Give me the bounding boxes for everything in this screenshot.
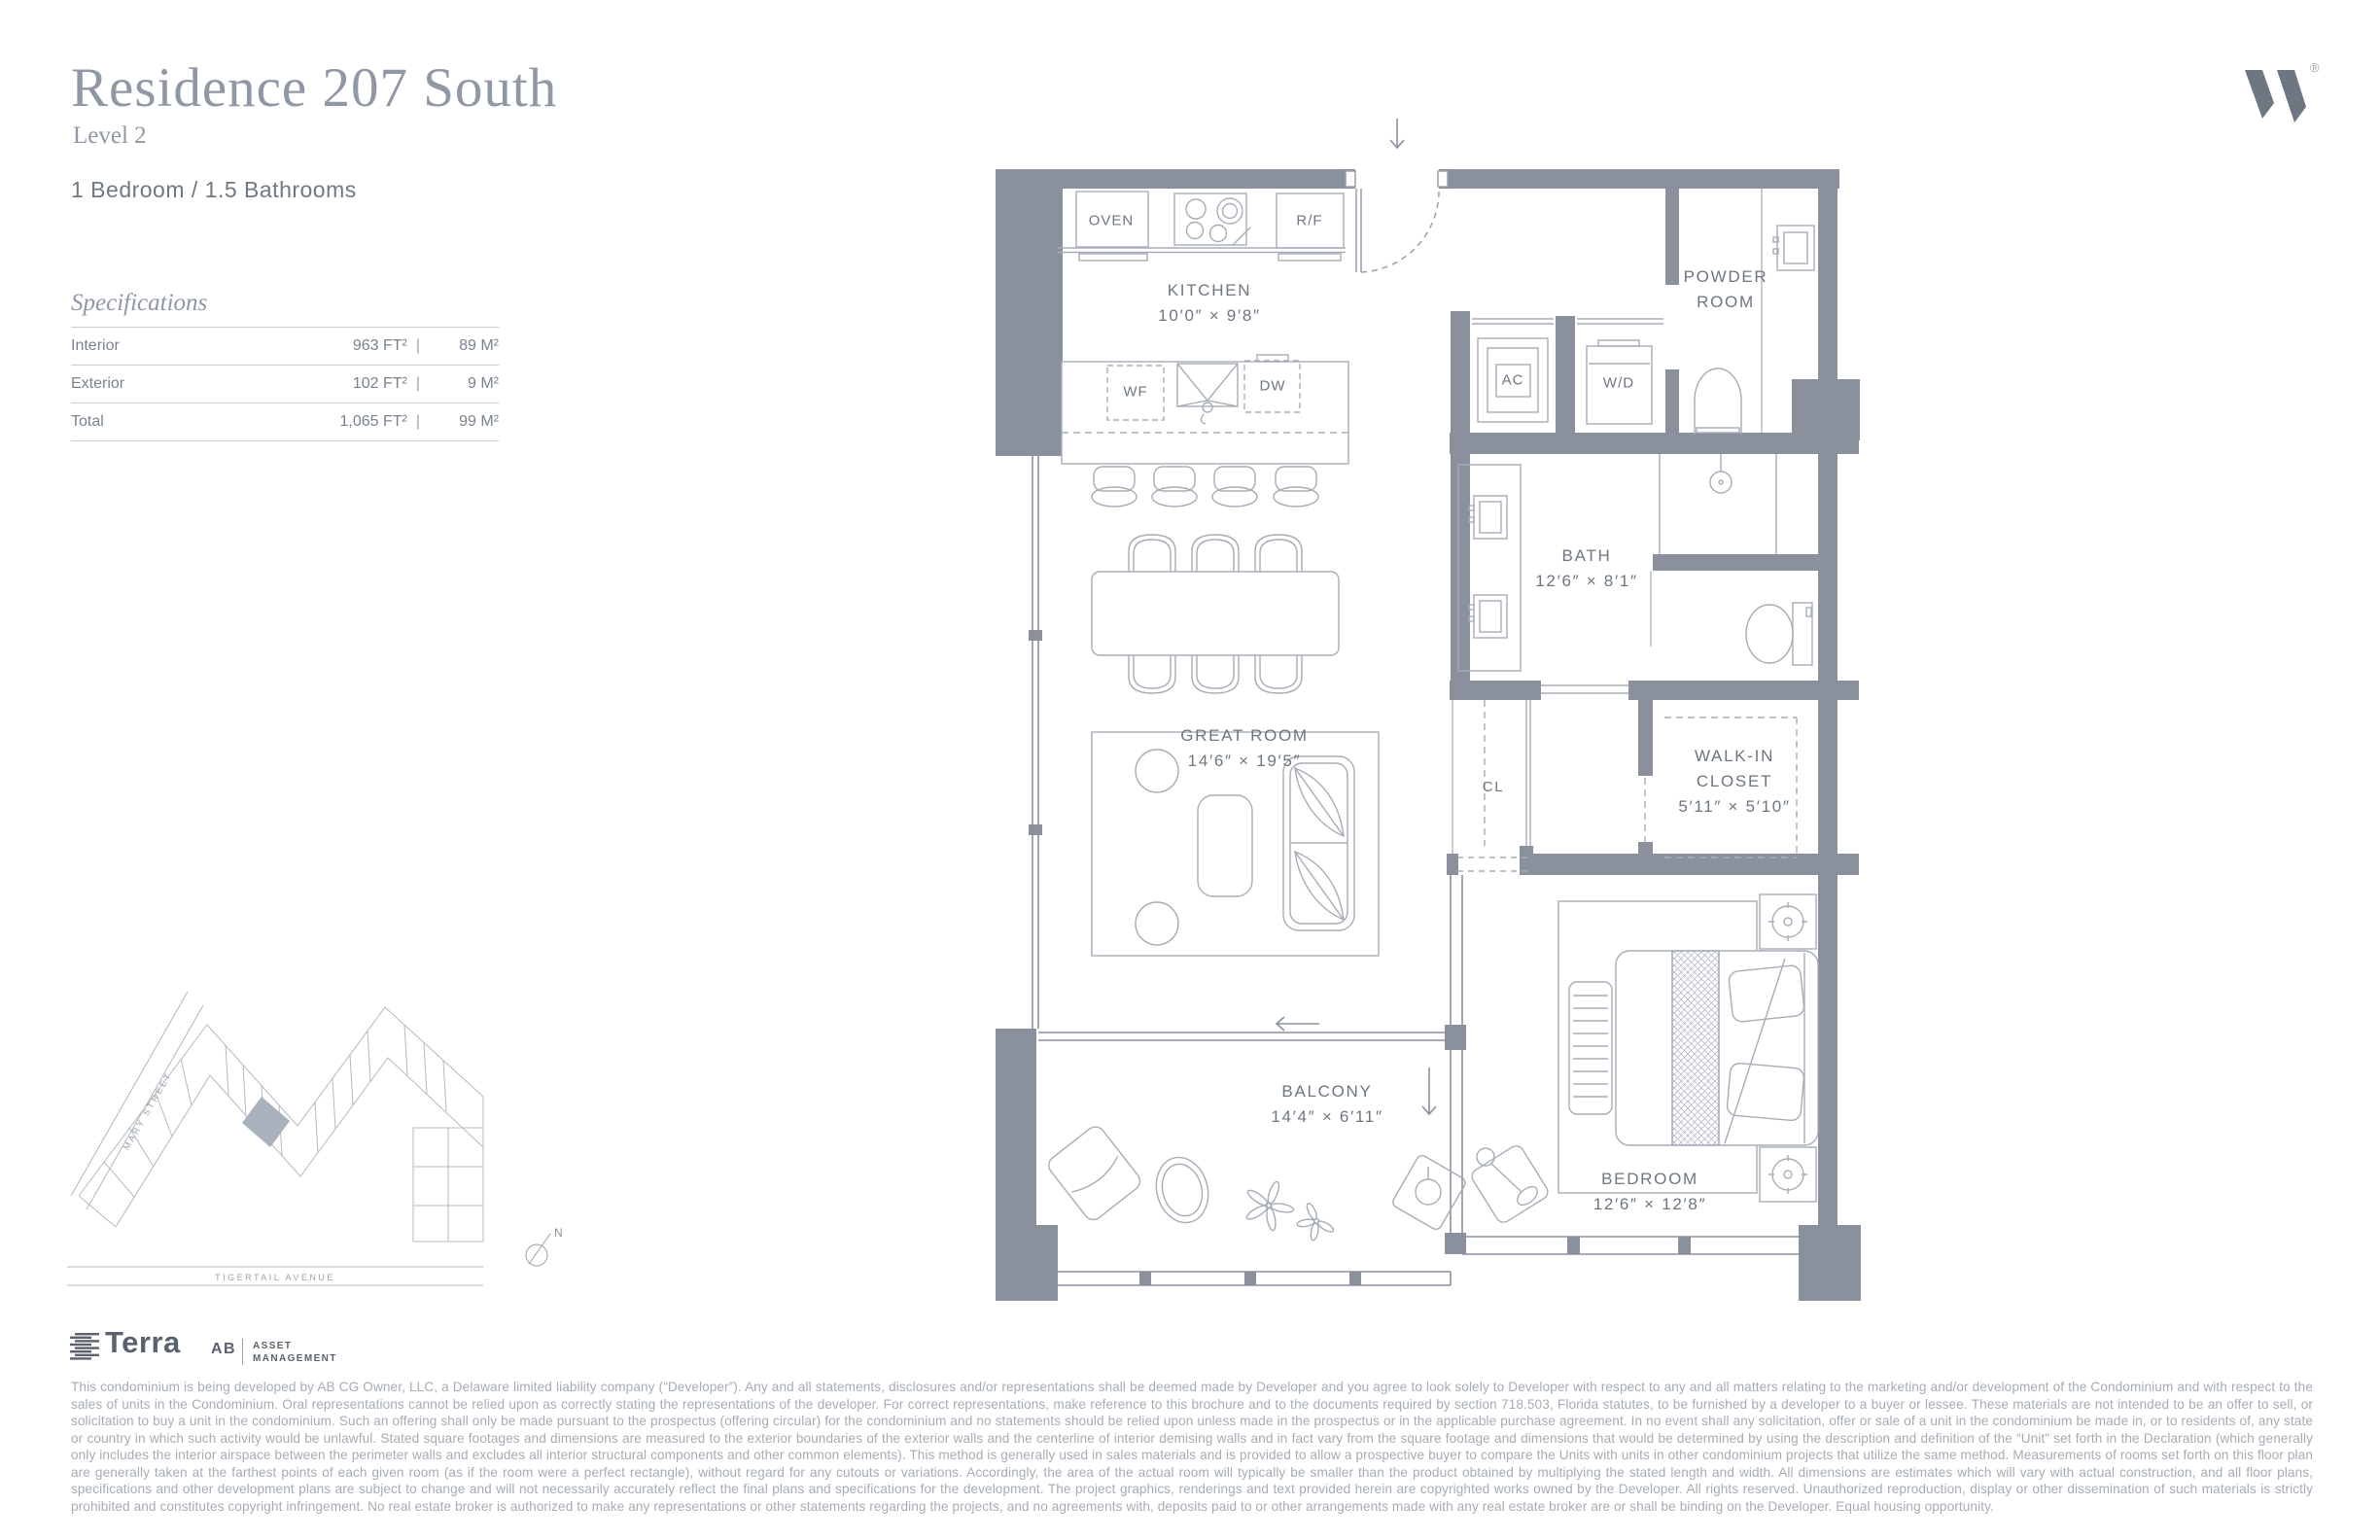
ab-division: ASSET MANAGEMENT [253,1340,337,1365]
room-dims: 12′6″ × 8′1″ [1535,569,1637,594]
specifications-table: Specifications Interior 963 FT² | 89 M² … [71,290,499,441]
label-wine-fridge: WF [1123,384,1147,401]
room-name: CLOSET [1678,769,1790,794]
room-name: CL [1483,775,1505,800]
spec-row-total: Total 1,065 FT² | 99 M² [71,402,499,441]
label-washer-dryer: W/D [1603,375,1634,392]
spec-metric: 99 M² [429,413,499,431]
spec-imperial: 102 FT² [300,375,407,393]
floor-plan-drawing [994,156,1867,1303]
island-stools [1092,467,1318,507]
label-fridge: R/F [1296,213,1322,229]
spec-imperial: 1,065 FT² [300,413,407,431]
spec-divider: | [407,375,429,393]
floor-plan: KITCHEN 10′0″ × 9′8″ GREAT ROOM 14′6″ × … [994,156,1867,1303]
label-closet: CL [1483,775,1505,800]
plant-icon [1244,1180,1335,1241]
ab-logo: AB [211,1341,236,1358]
room-name: KITCHEN [1158,278,1260,303]
label-powder-room: POWDER ROOM [1684,264,1768,315]
specifications-heading: Specifications [71,290,499,317]
spec-divider: | [407,337,429,355]
footer-divider [242,1339,243,1365]
ab-division-line2: MANAGEMENT [253,1352,337,1365]
spec-label: Exterior [71,375,300,393]
entry-door [1346,171,1448,272]
site-plan-drawing: MARY STREET TIGERTAIL AVENUE N [71,982,615,1303]
ab-division-line1: ASSET [253,1340,337,1352]
room-dims: 14′4″ × 6′11″ [1271,1104,1382,1130]
w-logo-icon [2234,58,2322,136]
terra-wordmark: Terra [105,1325,181,1360]
entry-arrow-icon [1390,119,1404,148]
w-brand-logo: ® [2234,58,2322,141]
label-air-conditioner: AC [1502,372,1524,389]
legal-disclaimer: This condominium is being developed by A… [71,1379,2313,1515]
label-dishwasher: DW [1260,378,1286,395]
room-name: BATH [1535,543,1637,569]
spec-divider: | [407,413,429,431]
spec-row-interior: Interior 963 FT² | 89 M² [71,327,499,365]
spec-imperial: 963 FT² [300,337,407,355]
page-configuration: 1 Bedroom / 1.5 Bathrooms [71,177,357,203]
dining-set [1092,535,1339,693]
page-level: Level 2 [73,122,147,150]
label-bath: BATH 12′6″ × 8′1″ [1535,543,1637,594]
street-label-mary: MARY STREET [122,1070,174,1152]
label-balcony: BALCONY 14′4″ × 6′11″ [1271,1079,1382,1130]
balcony-furniture [1045,1123,1467,1241]
room-dims: 5′11″ × 5′10″ [1678,794,1790,820]
highlighted-unit [242,1097,290,1147]
room-name: GREAT ROOM [1180,723,1309,749]
compass-north-label: N [554,1226,563,1240]
label-kitchen: KITCHEN 10′0″ × 9′8″ [1158,278,1260,329]
room-name: WALK-IN [1678,744,1790,769]
room-name: POWDER [1684,264,1768,290]
room-name: BALCONY [1271,1079,1382,1104]
spec-metric: 89 M² [429,337,499,355]
room-dims: 14′6″ × 19′5″ [1180,749,1309,774]
compass-icon: N [526,1226,563,1266]
label-bedroom: BEDROOM 12′6″ × 12′8″ [1593,1167,1707,1217]
room-name: BEDROOM [1593,1167,1707,1192]
spec-metric: 9 M² [429,375,499,393]
brochure-page: { "header": { "title": "Residence 207 So… [0,0,2380,1540]
room-dims: 12′6″ × 12′8″ [1593,1192,1707,1217]
registered-mark: ® [2310,60,2320,75]
label-great-room: GREAT ROOM 14′6″ × 19′5″ [1180,723,1309,774]
street-label-tigertail: TIGERTAIL AVENUE [215,1273,335,1282]
label-walk-in-closet: WALK-IN CLOSET 5′11″ × 5′10″ [1678,744,1790,820]
room-dims: 10′0″ × 9′8″ [1158,303,1260,329]
site-key-plan: MARY STREET TIGERTAIL AVENUE N [71,982,615,1303]
terra-logo-icon [70,1333,99,1360]
spec-row-exterior: Exterior 102 FT² | 9 M² [71,365,499,402]
label-oven: OVEN [1089,213,1135,229]
spec-label: Interior [71,337,300,355]
room-name: ROOM [1684,290,1768,315]
spec-label: Total [71,413,300,431]
page-title: Residence 207 South [71,56,557,120]
